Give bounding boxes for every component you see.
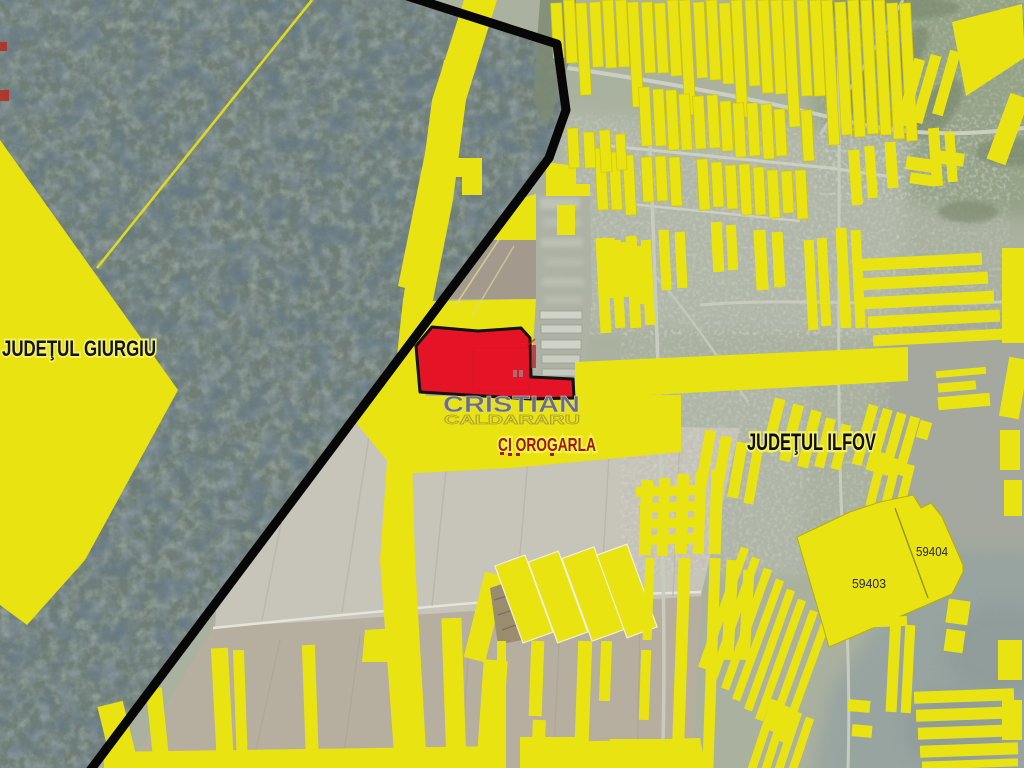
svg-text:CI OROGARLA: CI OROGARLA (498, 435, 596, 455)
svg-text:59404: 59404 (916, 544, 948, 559)
svg-text:CALDARARU: CALDARARU (444, 413, 580, 427)
svg-text:JUDEŢUL GIURGIU: JUDEŢUL GIURGIU (2, 336, 156, 361)
svg-text:JUDEŢUL ILFOV: JUDEŢUL ILFOV (747, 429, 876, 456)
svg-text:59403: 59403 (852, 576, 886, 591)
